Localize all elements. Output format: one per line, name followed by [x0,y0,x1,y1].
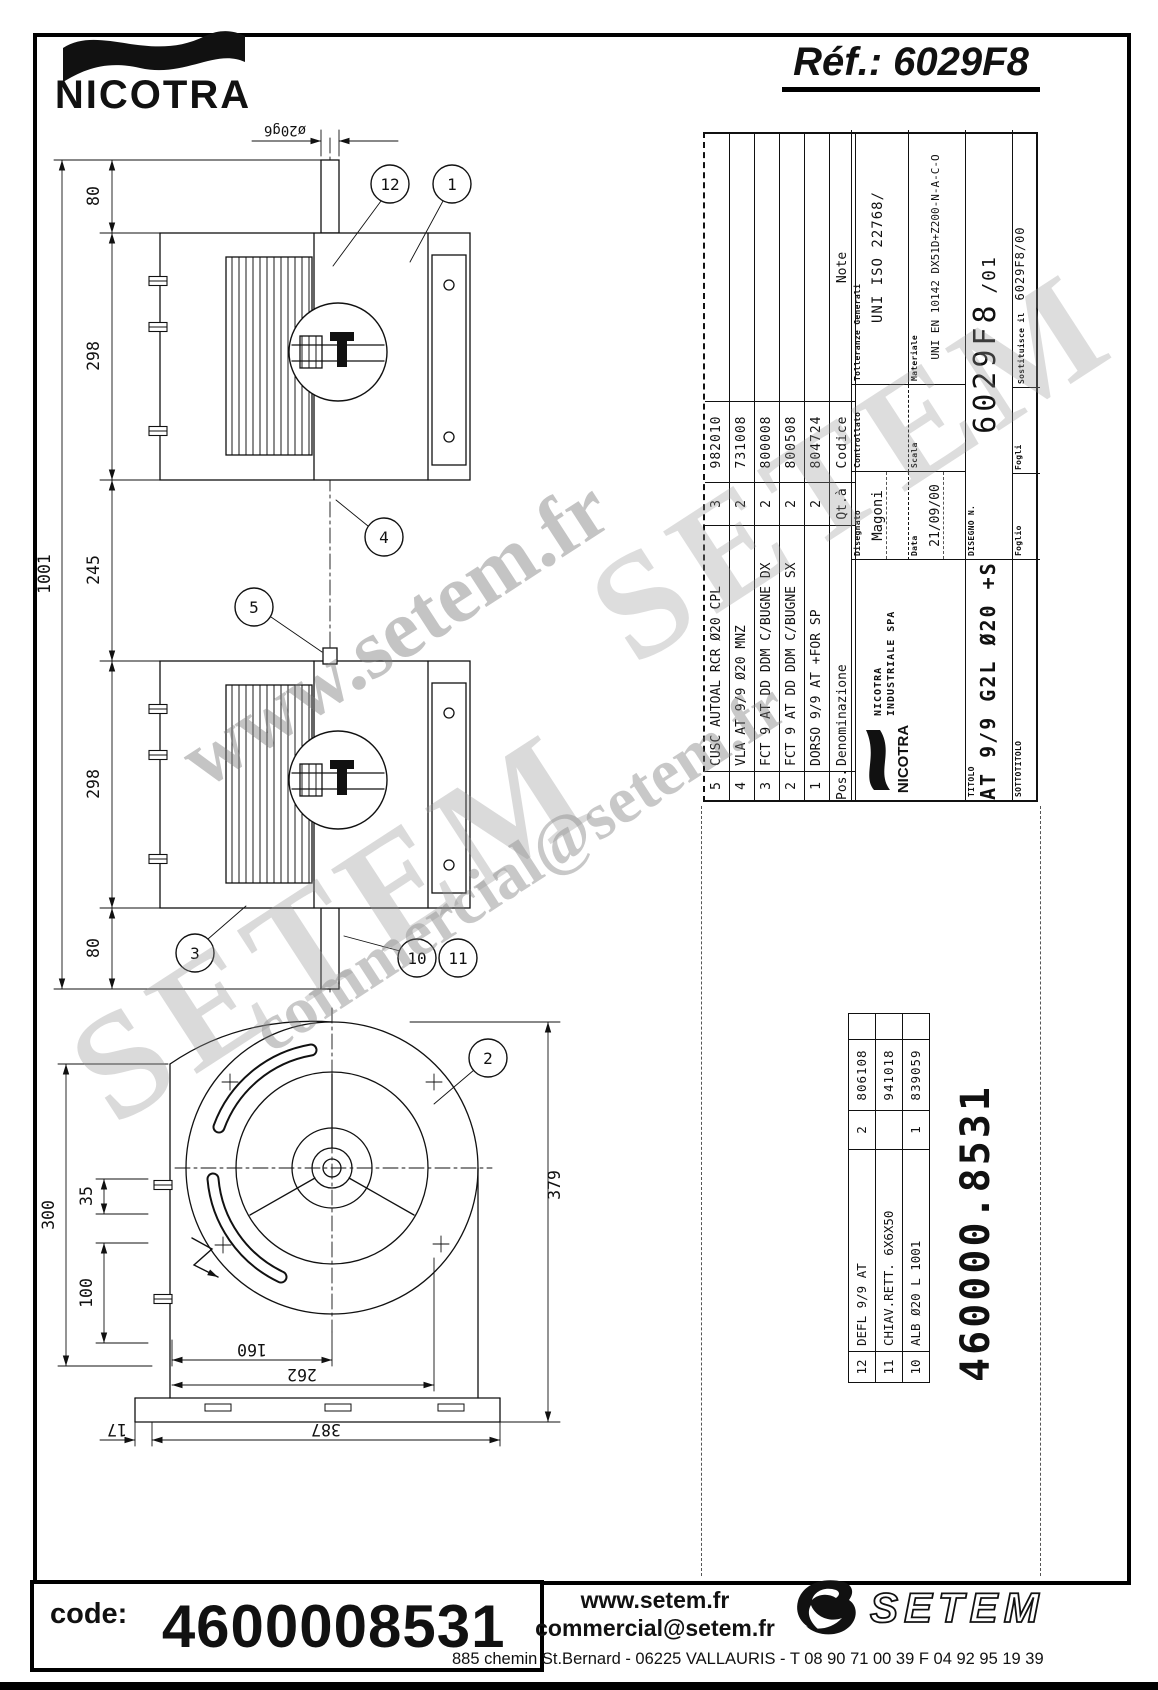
dim-80-bottom: 80 [84,938,103,958]
balloon-1-label: 1 [447,175,457,194]
big-code-text: 460000.8531 [948,1018,1004,1448]
nicotra-mini-logo: NICOTRA [858,722,912,796]
part-pos: 1 [805,771,829,800]
parts-row: 2FCT 9 AT DD DDM C/BUGNE SX2800508 [780,134,805,800]
part-qty: 2 [849,1110,875,1149]
disegno-revision: /01 [979,255,1000,294]
parts-row: 3FCT 9 AT DD DDM C/BUGNE DX2800008 [755,134,780,800]
data-value: 21/09/00 [928,472,944,559]
company-line2: INDUSTRIALE SPA [885,611,898,716]
front-view: 379 300 35 100 160 262 387 17 2 [39,1008,564,1446]
controllato-cell: Controllato [851,385,908,472]
flange-slot [325,1404,351,1411]
dim-160: 160 [237,1340,267,1359]
tolleranze-cell: Tolleranze Generali UNI ISO 22768/ [851,130,908,385]
part-denom: FCT 9 AT DD DDM C/BUGNE SX [780,525,804,771]
side-view: ø20g6 80 298 245 298 [35,122,477,994]
sostituisce-cell: Sostituisce il 6029F8/00 [1012,130,1040,388]
dim-17: 17 [107,1420,127,1439]
footer-email: commercial@setem.fr [520,1614,790,1642]
parts-row: 10ALB Ø20 L 10011839059 [903,1014,929,1382]
dim-298-lower: 298 [84,769,103,799]
bolt-icon [149,427,167,436]
code-label: code: [50,1598,127,1631]
nicotra-wave-icon [866,730,890,790]
shaft-coupling [323,648,337,664]
nicotra-logo: NICOTRA [45,20,270,119]
part-note [849,1014,875,1039]
materiale-cell: Materiale UNI EN 10142 DX51D+Z200-N-A-C-… [908,130,965,385]
part-code: 941018 [876,1039,902,1110]
dim-379: 379 [545,1170,564,1200]
setem-logo-text: SETEM [870,1584,1045,1631]
flange-slot [205,1404,231,1411]
disegnato-cell: Disegnato Magoni [851,472,908,560]
bolt-icon [154,1295,172,1304]
foglio-cell: Foglio [1012,474,1040,560]
sottotitolo-label: SOTTOTITOLO [1013,560,1023,800]
part-code: 806108 [849,1039,875,1110]
titolo-label: TITOLO [966,560,976,800]
setem-swirl-icon [797,1580,856,1634]
bolt-icon [154,1181,172,1190]
titolo-value: AT 9/9 G2L Ø20 +SB [976,560,1000,800]
part-pos: 3 [755,771,779,800]
part-code: 800508 [780,401,804,482]
fogli-cell: Fogli [1012,388,1040,474]
dim-262: 262 [287,1365,317,1384]
bolt-icon [149,323,167,332]
part-note [730,134,754,401]
part-code: 839059 [903,1039,929,1110]
dim-387: 387 [311,1420,341,1439]
part-denom: VLA AT 9/9 Ø20 MNZ [730,525,754,771]
parts-row: 11CHIAV.RETT. 6X6X50941018 [876,1014,903,1382]
dim-shaft-diameter: ø20g6 [264,122,306,138]
part-qty: 1 [903,1110,929,1149]
sottotitolo-cell: SOTTOTITOLO [1012,560,1040,800]
part-denom: CHIAV.RETT. 6X6X50 [876,1149,902,1351]
part-pos: 12 [849,1351,875,1382]
tolleranze-value: UNI ISO 22768/ [870,130,886,384]
part-denom: DORSO 9/9 AT +FOR SP [805,525,829,771]
data-label: Data [909,472,919,559]
disegnato-label: Disegnato [852,472,862,559]
fogli-label: Fogli [1013,388,1023,473]
dim-80-top: 80 [84,186,103,206]
footer-contacts: www.setem.fr commercial@setem.fr [520,1586,790,1642]
tolleranze-label: Tolleranze Generali [852,130,862,384]
balloon-10-label: 10 [407,949,426,968]
sostituisce-label: Sostituisce il [1016,312,1026,387]
company-cell: NICOTRA NICOTRA INDUSTRIALE SPA [851,560,965,800]
scala-cell: Scala [908,385,965,472]
balloon-12-label: 12 [380,175,399,194]
parts-row: 4VLA AT 9/9 Ø20 MNZ2731008 [730,134,755,800]
part-qty: 2 [730,482,754,525]
technical-drawing: ø20g6 80 298 245 298 [30,115,720,1485]
disegno-number: 6029F8 [968,301,1003,433]
volute-outline [170,1021,332,1064]
detail-circle-lower [289,731,387,829]
balloon-3-label: 3 [190,944,200,963]
scala-label: Scala [909,385,919,471]
footer-website: www.setem.fr [520,1586,790,1614]
rotation-arrow-icon [192,1238,218,1277]
setem-logo: SETEM [792,1576,1047,1644]
balloon-4-label: 4 [379,528,389,547]
part-code: 800008 [755,401,779,482]
spoke [250,1178,315,1215]
title-block: 5CUSC AUTOAL RCR Ø20 CPL3982010 4VLA AT … [703,132,1040,804]
dim-298-upper: 298 [84,341,103,371]
disegno-label: DISEGNO N. [966,505,976,559]
big-code: 460000.8531 [948,1018,1004,1448]
part-qty: 2 [780,482,804,525]
balloon-5-label: 5 [249,598,259,617]
lower-parts-table: 12DEFL 9/9 AT2806108 11CHIAV.RETT. 6X6X5… [848,1013,930,1383]
part-denom: DEFL 9/9 AT [849,1149,875,1351]
nicotra-brand-text: NICOTRA [55,73,251,115]
side-rail [432,255,466,465]
spoke [349,1178,414,1215]
dim-35: 35 [77,1186,96,1206]
company-line1: NICOTRA [872,611,885,716]
bottom-rule [0,1682,1158,1690]
nicotra-mini-brand: NICOTRA [895,725,912,793]
guide-line [1040,806,1041,1576]
kidney-slot [213,1179,281,1277]
balloon-2-label: 2 [483,1049,493,1068]
dim-245-middle: 245 [84,555,103,585]
footer-address: 885 chemin St.Bernard - 06225 VALLAURIS … [452,1650,1062,1669]
disegno-cell: DISEGNO N. 6029F8 /01 [965,130,1012,560]
foglio-label: Foglio [1013,474,1023,559]
dim-100: 100 [77,1278,96,1308]
part-pos: 10 [903,1351,929,1382]
detail-circle [289,303,387,401]
sostituisce-value: 6029F8/00 [1013,227,1027,301]
shaft-top-stub [321,160,339,233]
balloon-11-label: 11 [448,949,467,968]
controllato-label: Controllato [852,385,862,471]
drawing-sheet: NICOTRA Réf.: 6029F8 [0,0,1158,1690]
materiale-value: UNI EN 10142 DX51D+Z200-N-A-C-O [929,130,942,384]
dim-1001-overall: 1001 [35,554,54,594]
parts-row: 1DORSO 9/9 AT +FOR SP2804724 [805,134,830,800]
part-pos: 4 [730,771,754,800]
titolo-cell: TITOLO AT 9/9 G2L Ø20 +SB [965,560,1012,800]
disegnato-value: Magoni [870,472,887,559]
part-pos: 2 [780,771,804,800]
shaft-bottom-stub [321,908,339,989]
part-qty: 2 [805,482,829,525]
part-note [903,1014,929,1039]
part-note [805,134,829,401]
dim-300: 300 [39,1200,58,1230]
materiale-label: Materiale [909,130,919,384]
flange-slot [438,1404,464,1411]
part-code: 804724 [805,401,829,482]
part-code: 731008 [730,401,754,482]
bolt-icon [149,277,167,286]
part-qty: 2 [755,482,779,525]
reference-number: Réf.: 6029F8 [782,40,1040,92]
part-qty [876,1110,902,1149]
part-note [755,134,779,401]
parts-table: 5CUSC AUTOAL RCR Ø20 CPL3982010 4VLA AT … [705,134,856,800]
part-note [876,1014,902,1039]
part-denom: ALB Ø20 L 1001 [903,1149,929,1351]
part-note [780,134,804,401]
part-denom: FCT 9 AT DD DDM C/BUGNE DX [755,525,779,771]
parts-row: 12DEFL 9/9 AT2806108 [849,1014,876,1382]
data-cell: Data 21/09/00 [908,472,965,560]
part-pos: 11 [876,1351,902,1382]
